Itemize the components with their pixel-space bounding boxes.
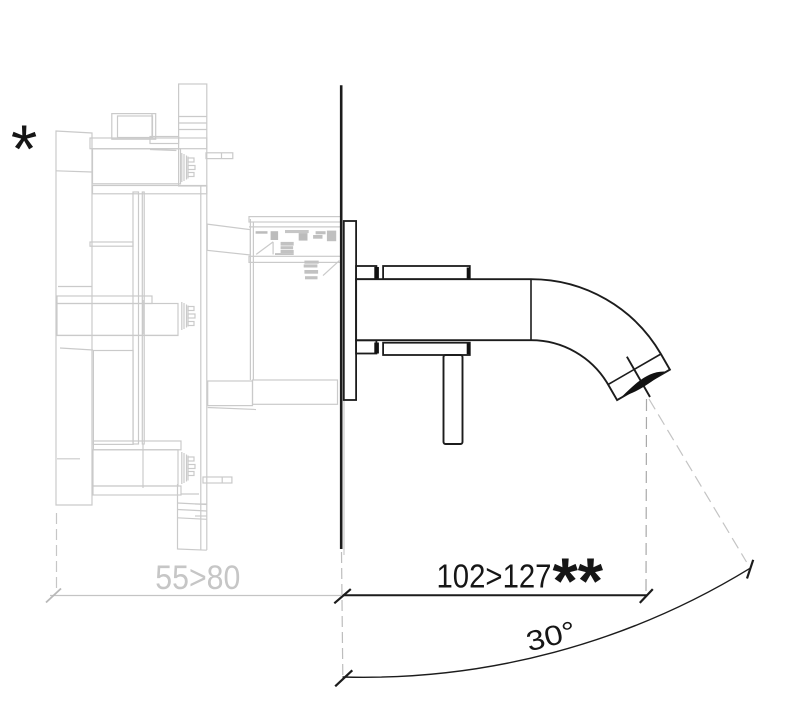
svg-text:102>127: 102>127 — [437, 557, 552, 594]
svg-text:**: ** — [553, 545, 604, 618]
svg-text:55>80: 55>80 — [155, 559, 240, 597]
svg-text:*: * — [11, 111, 37, 187]
svg-text:30°: 30° — [523, 615, 579, 657]
